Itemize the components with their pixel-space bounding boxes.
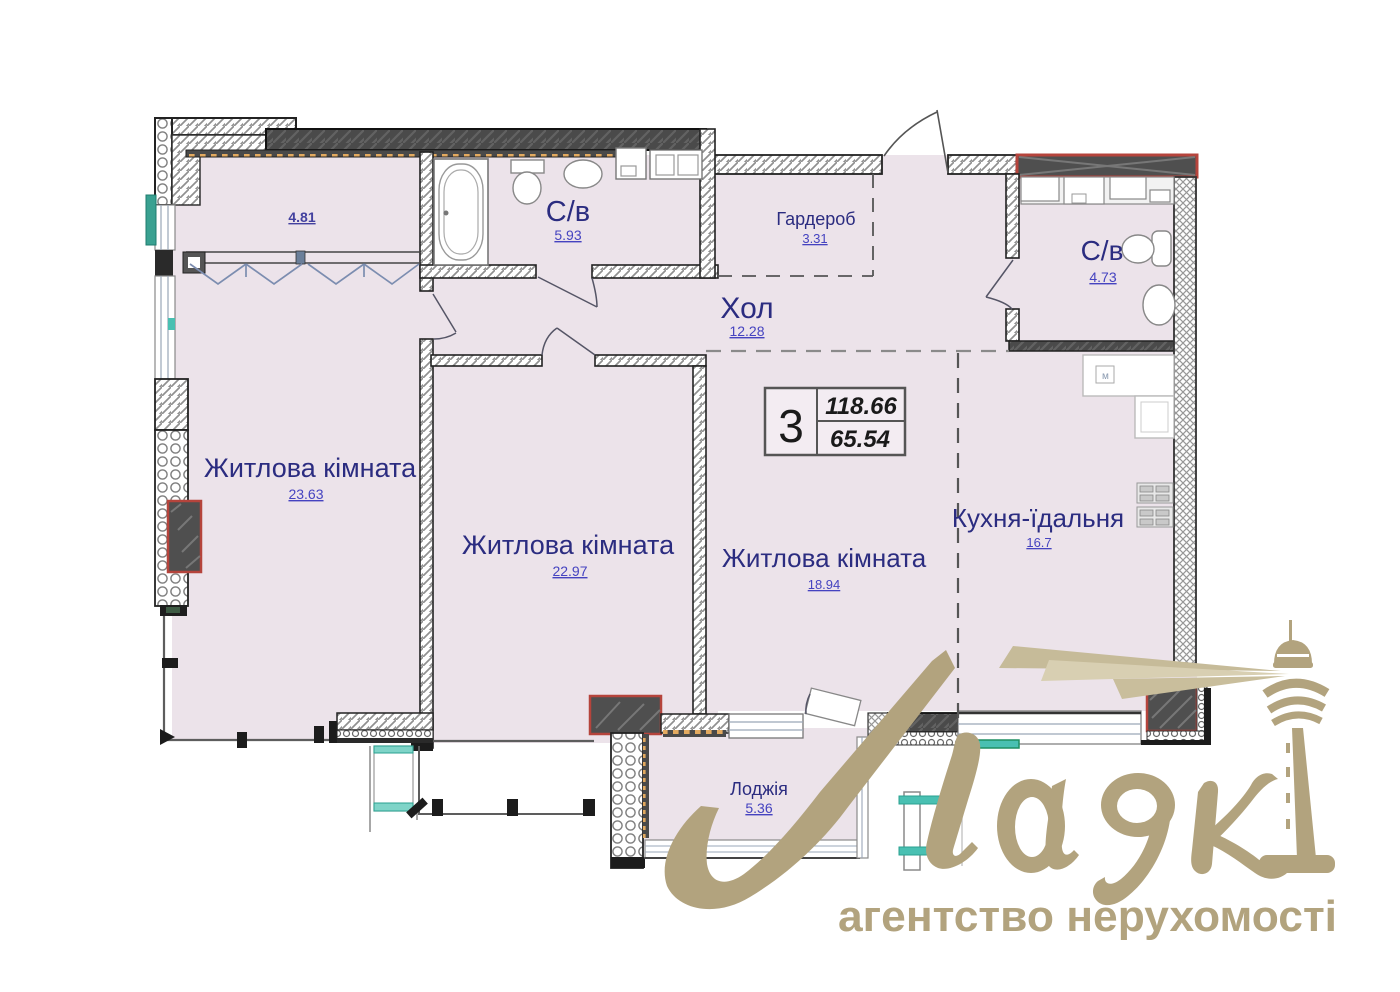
svg-text:22.97: 22.97 bbox=[552, 563, 587, 579]
svg-text:16.7: 16.7 bbox=[1026, 535, 1051, 550]
svg-text:Хол: Хол bbox=[720, 292, 773, 325]
svg-text:12.28: 12.28 bbox=[729, 323, 764, 339]
svg-text:Лоджія: Лоджія bbox=[730, 779, 788, 799]
svg-text:Кухня-їдальня: Кухня-їдальня bbox=[952, 503, 1124, 533]
svg-text:Гардероб: Гардероб bbox=[776, 209, 855, 229]
svg-text:4.81: 4.81 bbox=[288, 209, 315, 225]
svg-text:4.73: 4.73 bbox=[1089, 269, 1116, 285]
svg-text:С/в: С/в bbox=[546, 196, 590, 228]
svg-text:агентство нерухомості: агентство нерухомості bbox=[838, 892, 1337, 941]
svg-text:3.31: 3.31 bbox=[802, 231, 827, 246]
svg-text:23.63: 23.63 bbox=[288, 486, 323, 502]
svg-text:Житлова кімната: Житлова кімната bbox=[722, 543, 927, 573]
svg-text:118.66: 118.66 bbox=[825, 393, 897, 420]
svg-text:65.54: 65.54 bbox=[830, 426, 890, 453]
svg-text:м: м bbox=[1102, 371, 1109, 382]
svg-text:Житлова кімната: Житлова кімната bbox=[204, 453, 417, 483]
svg-text:3: 3 bbox=[778, 400, 804, 452]
svg-text:18.94: 18.94 bbox=[808, 577, 841, 592]
svg-text:С/в: С/в bbox=[1081, 235, 1124, 266]
svg-text:5.93: 5.93 bbox=[554, 227, 581, 243]
svg-text:5.36: 5.36 bbox=[745, 800, 772, 816]
svg-text:Житлова кімната: Житлова кімната bbox=[462, 530, 675, 560]
